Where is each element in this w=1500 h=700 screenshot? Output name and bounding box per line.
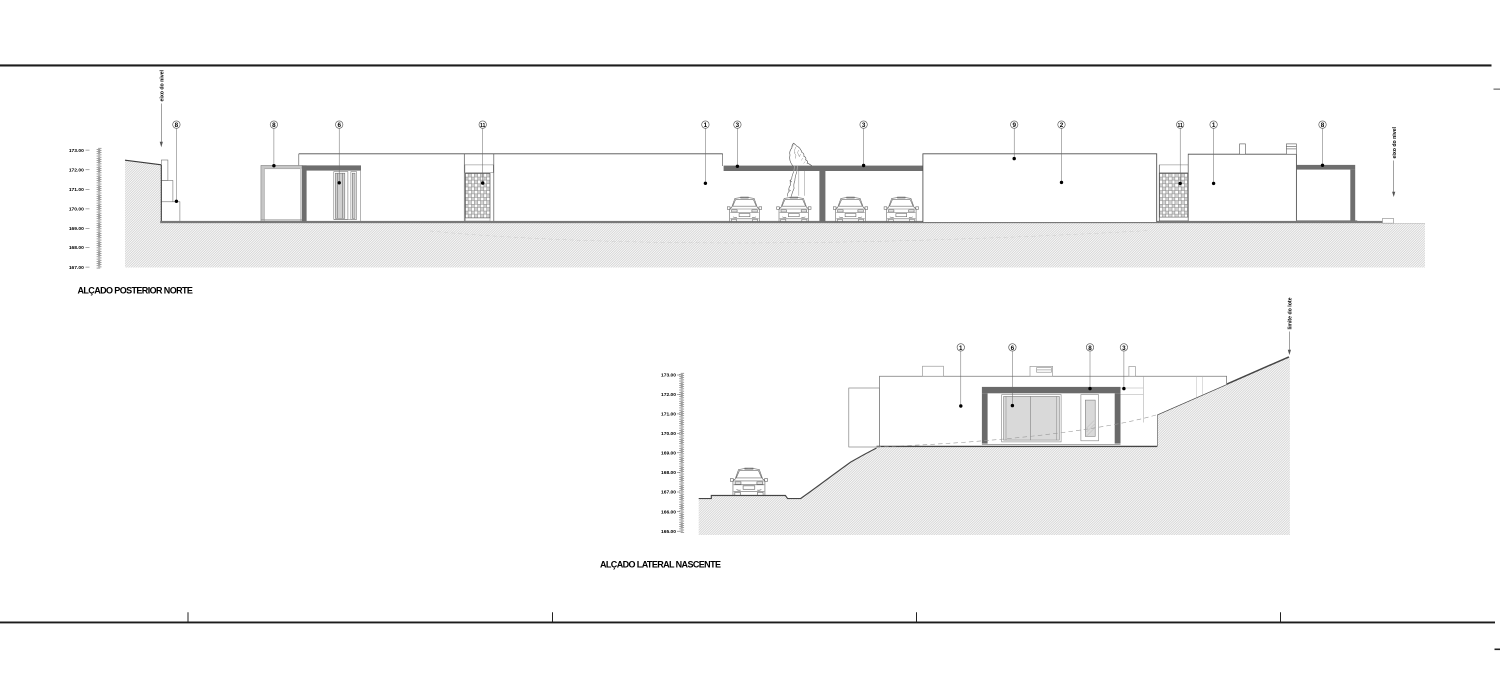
svg-text:8: 8 [175,122,179,129]
svg-text:3: 3 [736,122,740,129]
svg-text:ALÇADO LATERAL NASCENTE: ALÇADO LATERAL NASCENTE [600,559,721,569]
svg-text:167.00: 167.00 [661,490,676,496]
svg-text:8: 8 [1321,122,1325,129]
svg-text:2: 2 [1060,122,1064,129]
svg-text:170.00: 170.00 [661,431,676,437]
svg-text:eixo do nivel: eixo do nivel [1392,127,1398,159]
svg-text:6: 6 [1011,345,1015,352]
svg-text:170.00: 170.00 [69,207,84,213]
svg-text:6: 6 [337,122,341,129]
svg-text:168.00: 168.00 [661,470,676,476]
svg-text:166.00: 166.00 [661,509,676,515]
svg-text:1: 1 [959,345,963,352]
svg-text:172.00: 172.00 [661,392,676,398]
svg-text:167.00: 167.00 [69,265,84,271]
svg-text:171.00: 171.00 [661,412,676,418]
svg-text:8: 8 [272,122,276,129]
svg-text:8: 8 [1088,345,1092,352]
svg-text:169.00: 169.00 [69,226,84,232]
svg-text:171.00: 171.00 [69,187,84,193]
svg-text:limite do lote: limite do lote [1288,297,1294,329]
svg-text:172.00: 172.00 [69,168,84,174]
svg-text:165.00: 165.00 [661,529,676,535]
svg-text:eixo do nivel: eixo do nivel [159,70,165,102]
svg-text:1: 1 [1212,122,1216,129]
svg-text:11: 11 [1177,123,1183,129]
svg-text:169.00: 169.00 [661,451,676,457]
svg-text:3: 3 [862,122,866,129]
svg-text:9: 9 [1012,122,1016,129]
svg-text:168.00: 168.00 [69,245,84,251]
svg-text:1: 1 [704,122,708,129]
svg-text:11: 11 [480,123,486,129]
svg-text:173.00: 173.00 [69,148,84,154]
svg-text:ALÇADO POSTERIOR NORTE: ALÇADO POSTERIOR NORTE [78,285,193,295]
svg-text:3: 3 [1122,345,1126,352]
svg-text:173.00: 173.00 [661,373,676,379]
